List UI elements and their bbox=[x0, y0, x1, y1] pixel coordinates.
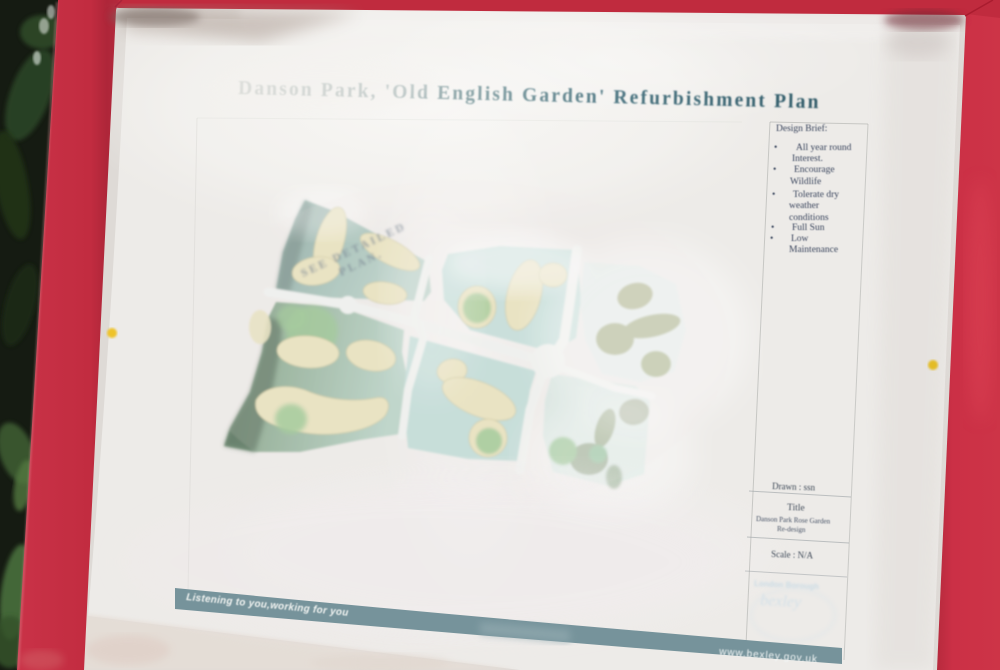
svg-text:Re-design: Re-design bbox=[777, 525, 806, 534]
svg-text:•: • bbox=[774, 143, 777, 153]
svg-text:Scale : N/A: Scale : N/A bbox=[771, 549, 814, 560]
svg-text:•: • bbox=[773, 165, 776, 175]
svg-text:Wildlife: Wildlife bbox=[790, 176, 821, 187]
svg-text:•: • bbox=[770, 234, 773, 244]
svg-text:Title: Title bbox=[787, 503, 805, 514]
svg-text:Interest.: Interest. bbox=[792, 154, 823, 164]
svg-text:Drawn : ssn: Drawn : ssn bbox=[772, 481, 816, 493]
svg-text:weather: weather bbox=[789, 201, 820, 211]
svg-text:Full Sun: Full Sun bbox=[792, 223, 825, 233]
svg-text:•: • bbox=[771, 223, 774, 233]
svg-text:•: • bbox=[772, 190, 775, 200]
svg-text:All year round: All year round bbox=[796, 143, 852, 153]
svg-text:Low: Low bbox=[791, 234, 809, 244]
svg-text:Maintenance: Maintenance bbox=[789, 245, 838, 255]
svg-text:Design Brief:: Design Brief: bbox=[776, 123, 827, 134]
svg-text:Tolerate dry: Tolerate dry bbox=[793, 190, 839, 200]
svg-text:Encourage: Encourage bbox=[794, 165, 835, 175]
svg-text:conditions: conditions bbox=[789, 213, 829, 223]
